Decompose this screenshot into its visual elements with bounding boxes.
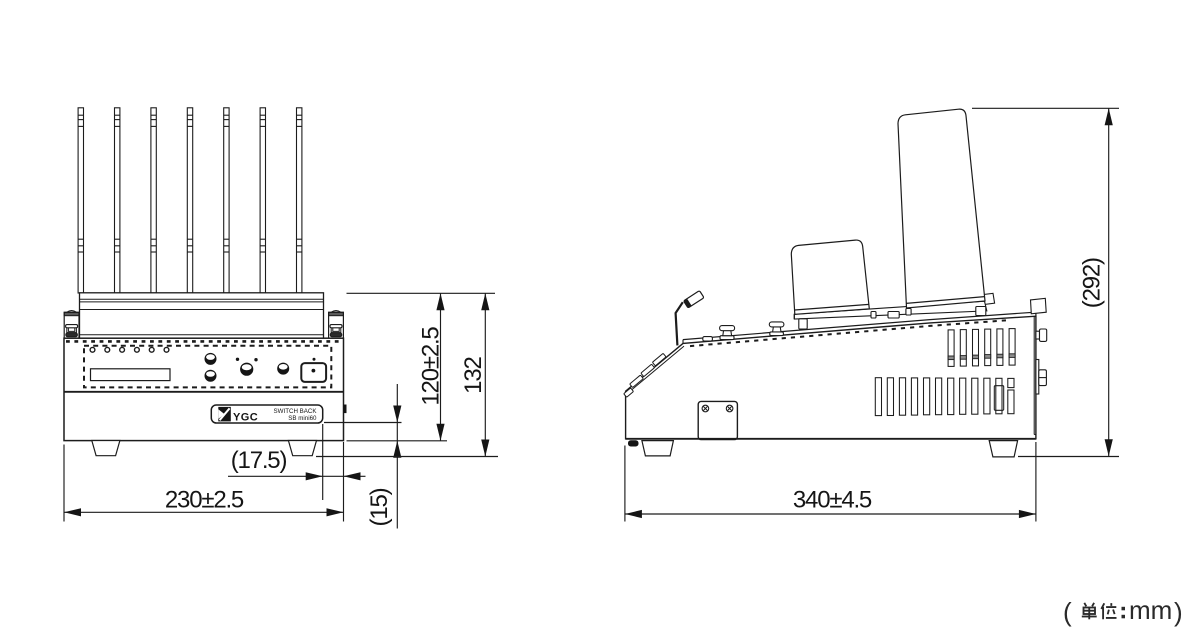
svg-text:): ): [1174, 597, 1183, 627]
svg-text:SWITCH BACK: SWITCH BACK: [274, 408, 318, 415]
svg-text:(292): (292): [1079, 258, 1106, 308]
svg-text:120±2.5: 120±2.5: [417, 327, 444, 406]
svg-text:230±2.5: 230±2.5: [165, 487, 244, 514]
svg-text:mm: mm: [1129, 595, 1172, 625]
svg-text:132: 132: [460, 357, 487, 394]
svg-text:SB mini60: SB mini60: [288, 415, 317, 422]
svg-text:YGC: YGC: [233, 412, 258, 424]
svg-text:340±4.5: 340±4.5: [793, 487, 872, 514]
svg-text:(17.5): (17.5): [231, 447, 287, 474]
svg-text:(15): (15): [366, 488, 393, 526]
svg-text:(: (: [1063, 597, 1072, 627]
